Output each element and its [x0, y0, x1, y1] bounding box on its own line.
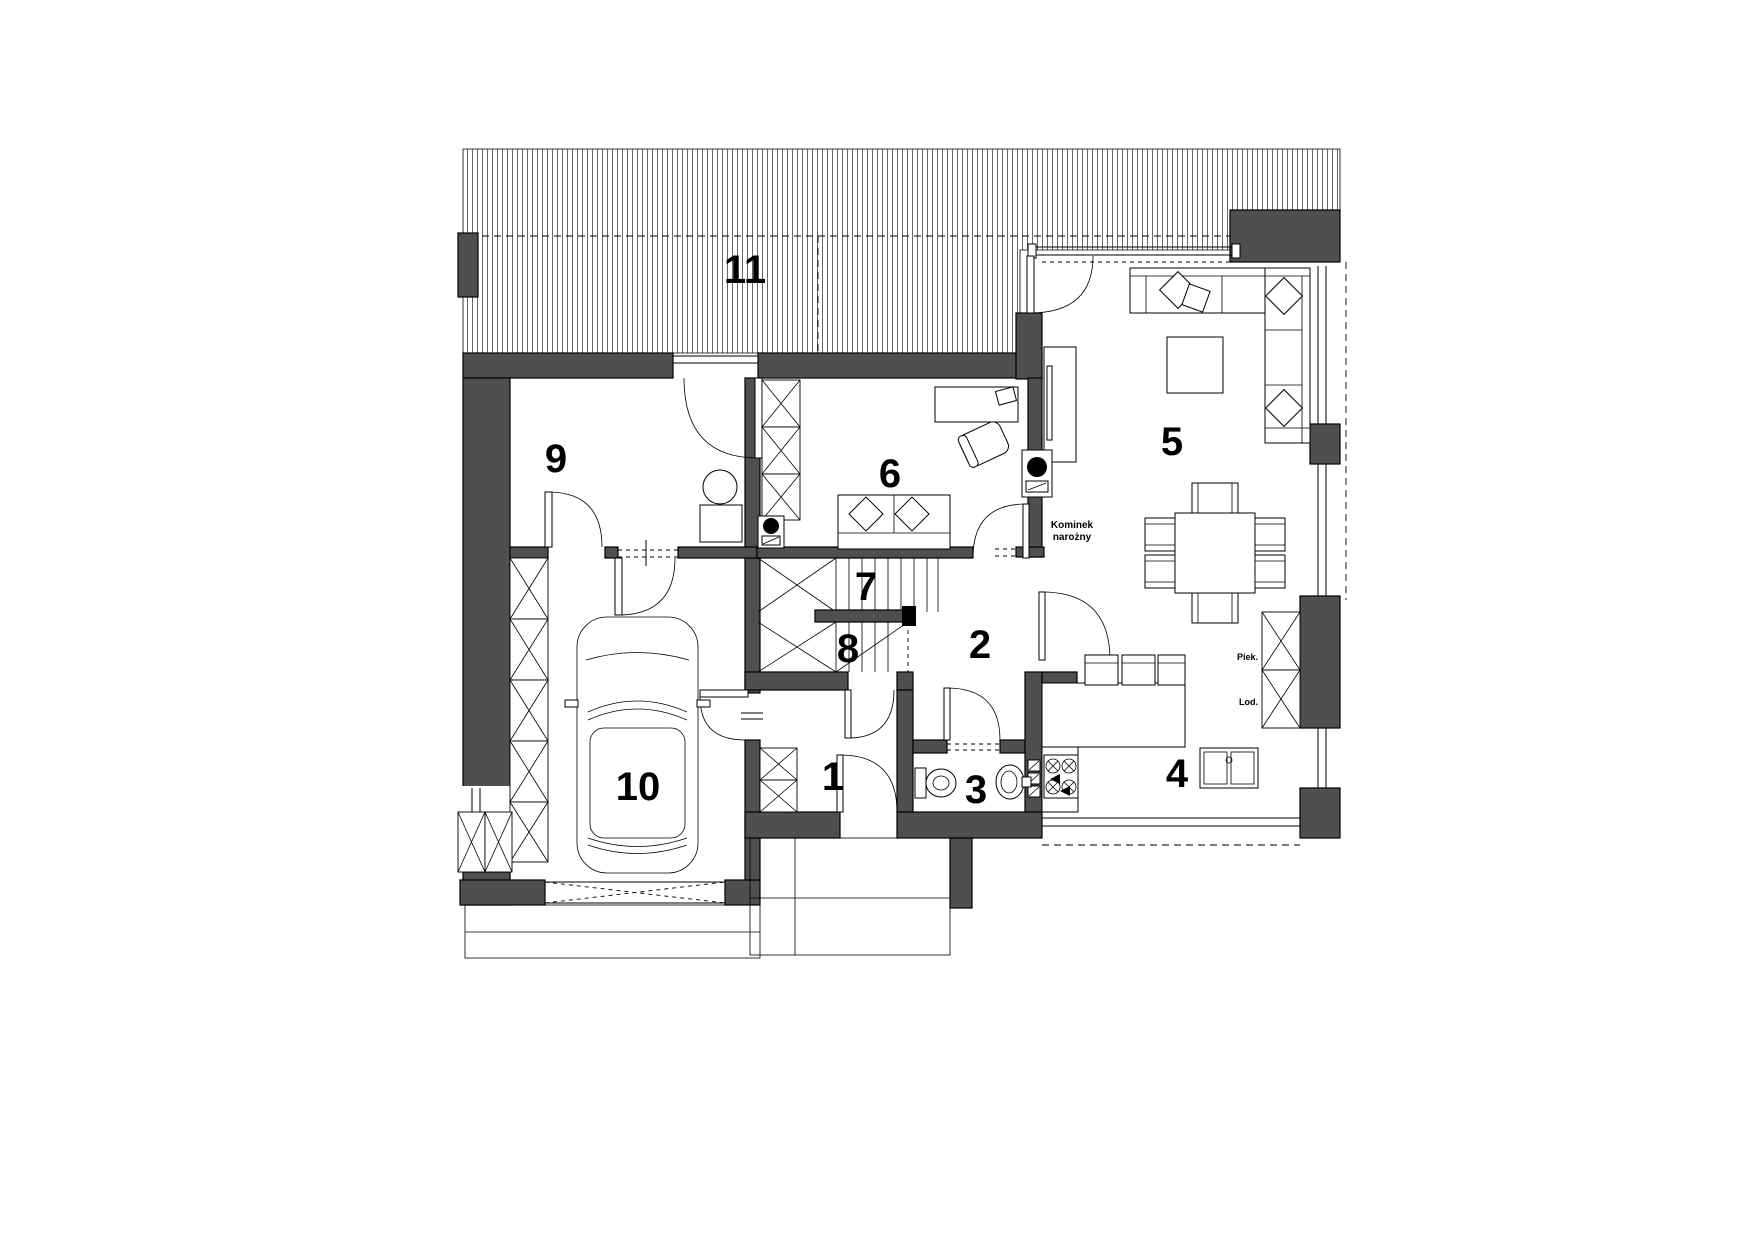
garage-wall-strip: [510, 558, 548, 862]
south-window-band: [1042, 818, 1300, 826]
room-label-3: 3: [965, 768, 987, 812]
room-label-4: 4: [1166, 752, 1189, 796]
room-label-5: 5: [1161, 420, 1183, 464]
washing-machine: [700, 505, 742, 542]
oven-label: Piek.: [1237, 652, 1258, 662]
right-window-upper: [1318, 266, 1326, 424]
living-terrace-door-swing: [1030, 256, 1093, 313]
room-label-11: 11: [724, 248, 766, 292]
dining-set: [1145, 483, 1285, 623]
entry-wardrobe-strip: [760, 748, 797, 812]
top-right-wall-block: [1230, 210, 1340, 262]
car-top-view: [565, 617, 710, 873]
toilet-tank: [915, 768, 926, 798]
car-mirror: [697, 700, 710, 707]
roof-canopy-area: [458, 149, 1340, 353]
room-label-6: 6: [879, 452, 901, 496]
porch-wall-stub: [950, 838, 972, 908]
tv: [1047, 366, 1052, 440]
car-mirror: [565, 700, 578, 707]
room-label-1: 1: [822, 755, 844, 799]
room-label-7: 7: [855, 565, 877, 609]
kitchen-sink: [1200, 748, 1258, 788]
desk-chair: [957, 419, 1011, 468]
front-door-swing: [840, 755, 897, 812]
right-window-middle: [1318, 464, 1326, 596]
living-room-furniture: [1130, 268, 1310, 623]
room-label-10: 10: [616, 765, 661, 809]
kitchen-tall-cabinets: [1262, 612, 1300, 728]
hall-corridor-door-swing: [848, 690, 894, 738]
fireplace-note-line2: narożny: [1053, 532, 1092, 543]
fireplace-note-line1: Kominek: [1051, 520, 1094, 531]
chimney-stub-wall: [458, 233, 478, 297]
room-label-2: 2: [969, 623, 991, 667]
utility-room-fixtures: [700, 470, 742, 542]
room-label-8: 8: [837, 627, 859, 671]
wc-door-swing: [947, 688, 1000, 740]
stair-half-wall: [815, 610, 912, 622]
garage-inner-door-swing: [618, 558, 675, 615]
washbasin: [996, 765, 1024, 799]
office-terrace-door-frame: [673, 356, 758, 363]
dining-table: [1175, 513, 1255, 593]
floor-plan-drawing: 11 9 6 5 7 8 2 1 3 10 4 Kominek narożny …: [0, 0, 1754, 1240]
kitchen-bar-counter: [1042, 683, 1185, 747]
fridge-label: Lod.: [1239, 697, 1258, 707]
right-window-lower: [1318, 728, 1326, 788]
living-room-door-swing: [1042, 592, 1110, 660]
basin-tap: [1022, 777, 1031, 787]
room-label-9: 9: [545, 437, 567, 481]
garage-door-symbol: [545, 882, 725, 903]
entry-porch: [750, 838, 950, 955]
floor-plan-page: 11 9 6 5 7 8 2 1 3 10 4 Kominek narożny …: [0, 0, 1754, 1240]
utility-door-swing: [548, 492, 602, 547]
utility-sink: [703, 470, 737, 504]
corner-insulation-block: [458, 812, 512, 872]
cooktop: [1044, 755, 1078, 798]
office-wardrobe-strip: [762, 380, 800, 520]
toilet-bowl: [926, 769, 956, 797]
coffee-table: [1167, 337, 1223, 393]
